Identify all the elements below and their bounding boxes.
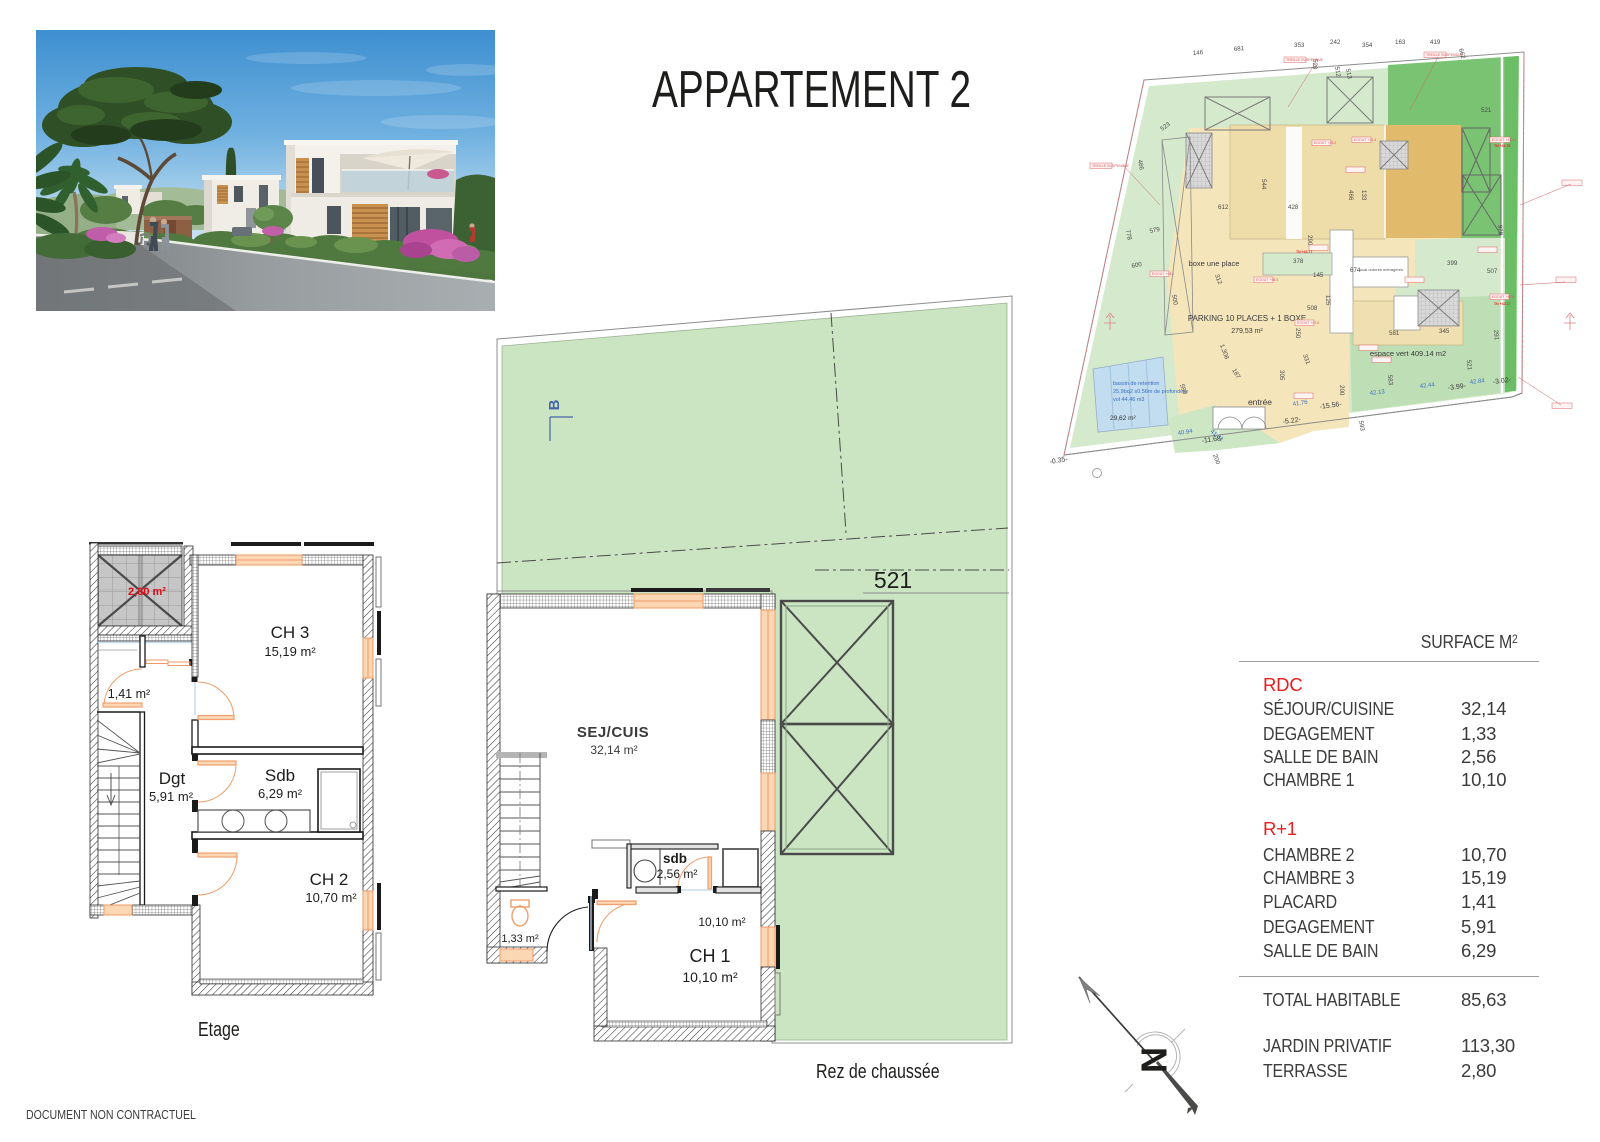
svg-text:10,10 m²: 10,10 m² [682, 969, 738, 985]
svg-text:Dgt: Dgt [159, 769, 186, 788]
svg-text:1,33 m²: 1,33 m² [501, 933, 539, 945]
svg-text:CH 1: CH 1 [689, 946, 730, 966]
svg-text:bassin de retention: bassin de retention [1113, 381, 1159, 387]
svg-text:CH 2: CH 2 [310, 870, 349, 889]
svg-text:5,91 m²: 5,91 m² [149, 789, 194, 804]
svg-text:10,10 m²: 10,10 m² [698, 915, 745, 929]
svg-text:10,70 m²: 10,70 m² [305, 890, 357, 905]
svg-text:Sdb: Sdb [265, 766, 295, 785]
svg-text:29,62 m²: 29,62 m² [1110, 415, 1136, 422]
svg-text:6,29 m²: 6,29 m² [258, 786, 303, 801]
svg-text:SEJ/CUIS: SEJ/CUIS [577, 724, 649, 741]
svg-text:32,14 m²: 32,14 m² [590, 743, 637, 757]
svg-text:15,19 m²: 15,19 m² [264, 644, 316, 659]
svg-text:200: 200 [1211, 453, 1221, 466]
svg-text:612: 612 [1218, 204, 1229, 211]
svg-text:EGOUT +44.1: EGOUT +44.1 [1152, 272, 1174, 276]
svg-text:2,56 m²: 2,56 m² [657, 867, 698, 881]
svg-text:boxe une place: boxe une place [1189, 259, 1240, 268]
svg-text:2,80 m²: 2,80 m² [128, 586, 166, 598]
svg-text:146: 146 [1193, 49, 1204, 57]
svg-text:vol 44.46 m3: vol 44.46 m3 [1113, 397, 1145, 403]
svg-text:25.9bq2 s0.56m de profondeur: 25.9bq2 s0.56m de profondeur [1113, 389, 1188, 395]
svg-text:B: B [546, 399, 563, 410]
svg-text:521: 521 [874, 567, 912, 593]
svg-text:1,41 m²: 1,41 m² [108, 687, 150, 701]
svg-text:-0.35-: -0.35- [1050, 456, 1069, 466]
svg-text:sdb: sdb [663, 851, 687, 866]
svg-text:CH 3: CH 3 [271, 623, 310, 642]
svg-text:N: N [1134, 1047, 1175, 1073]
